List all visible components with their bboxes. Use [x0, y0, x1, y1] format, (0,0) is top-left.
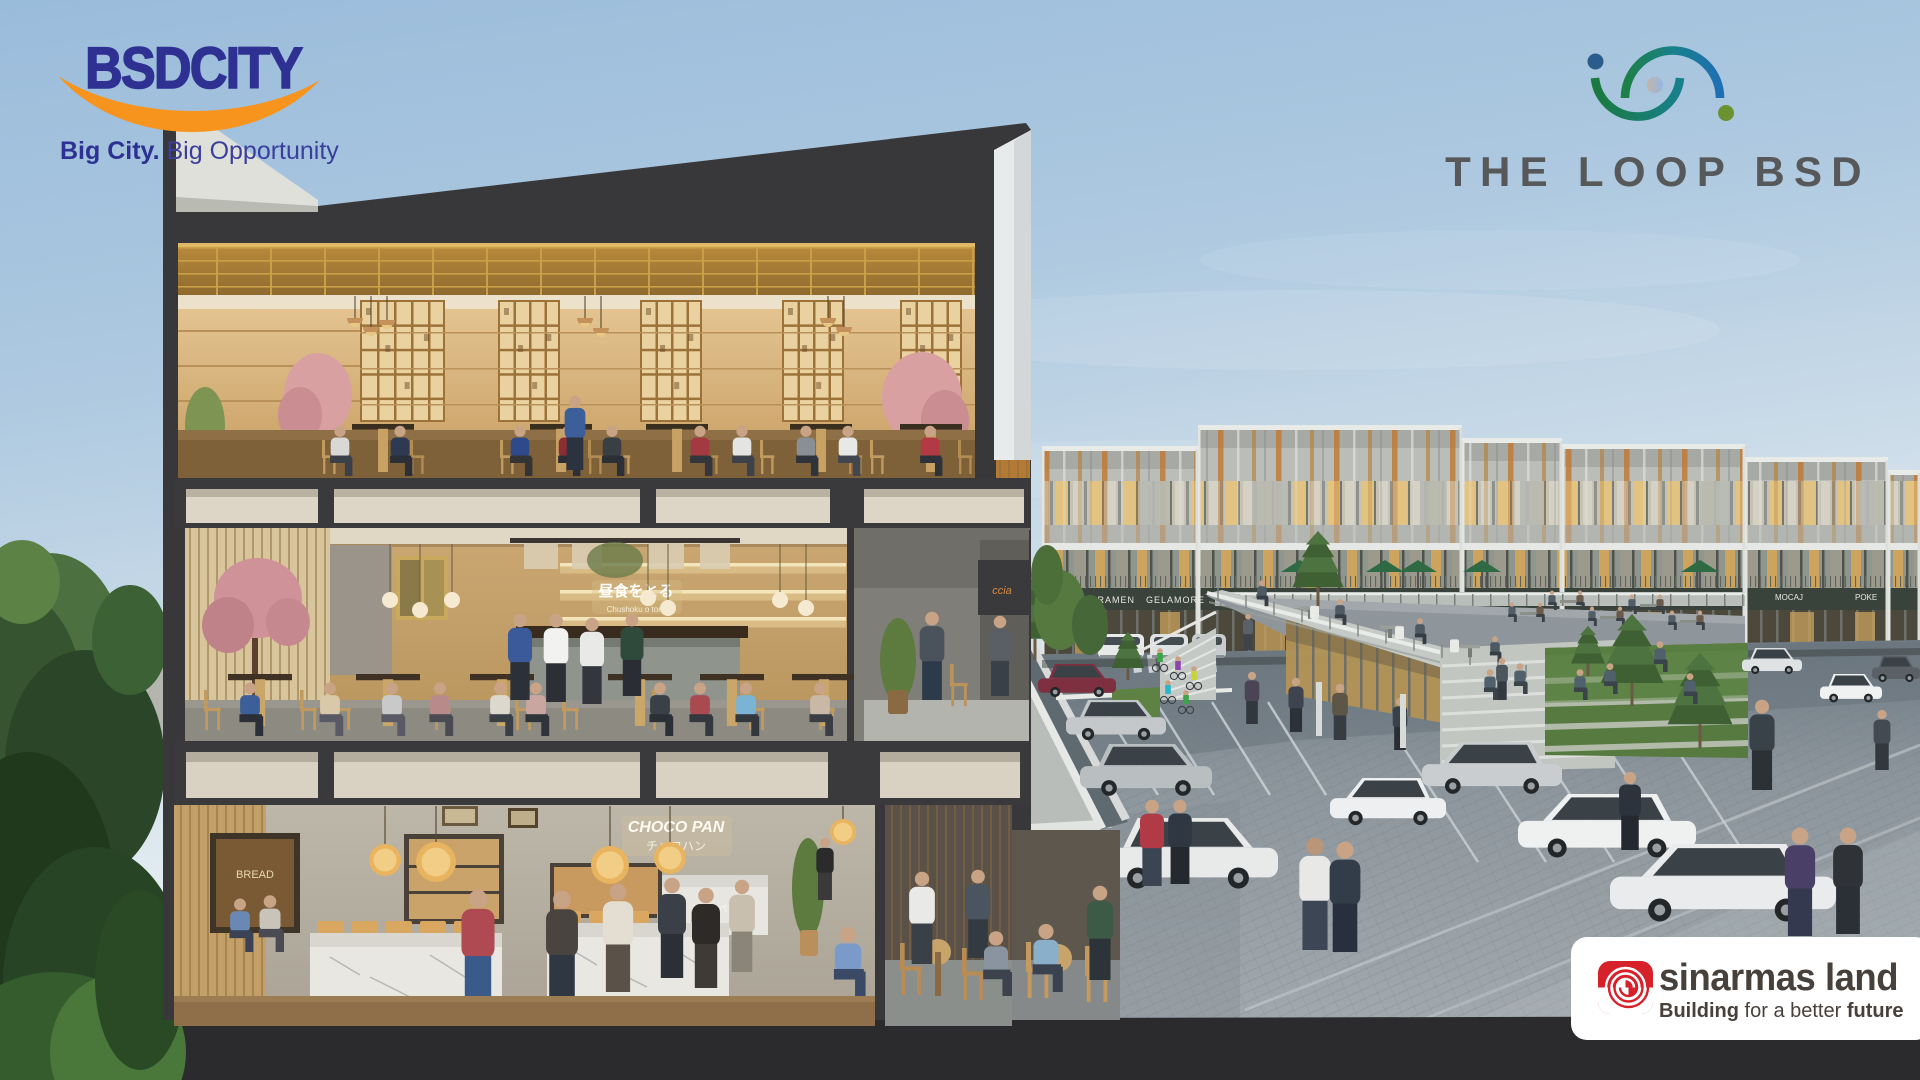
svg-text:CHOCO PAN: CHOCO PAN — [628, 819, 725, 836]
svg-text:MOCAJ: MOCAJ — [1775, 593, 1803, 602]
svg-text:GELAMORE: GELAMORE — [1146, 595, 1205, 605]
svg-text:POKE: POKE — [1855, 593, 1877, 602]
svg-text:sinarmas land: sinarmas land — [1659, 955, 1898, 998]
svg-text:Big City. Big Opportunity: Big City. Big Opportunity — [60, 137, 339, 165]
svg-text:Building for a better future: Building for a better future — [1659, 1000, 1904, 1022]
svg-text:Chushoku o toru: Chushoku o toru — [607, 605, 666, 614]
svg-text:BSDCITY: BSDCITY — [85, 35, 302, 100]
svg-text:THE LOOP BSD: THE LOOP BSD — [1445, 148, 1871, 195]
svg-text:BREAD: BREAD — [236, 869, 274, 881]
svg-text:ccia: ccia — [992, 585, 1012, 597]
svg-text:昼食をとる: 昼食をとる — [598, 582, 673, 600]
